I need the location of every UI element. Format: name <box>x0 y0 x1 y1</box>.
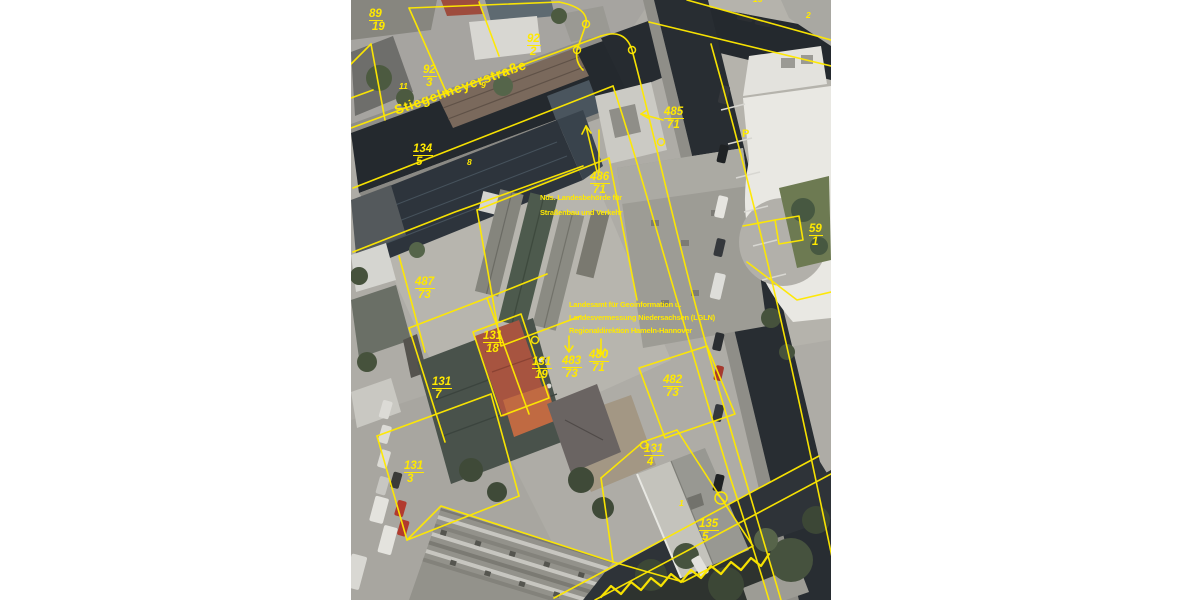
screen: 8919922923134548571486714877359113118131… <box>0 0 1200 600</box>
left-margin <box>0 0 351 600</box>
aerial-photo <box>351 0 831 600</box>
right-margin <box>831 0 1200 600</box>
map-viewport[interactable]: 8919922923134548571486714877359113118131… <box>351 0 831 600</box>
